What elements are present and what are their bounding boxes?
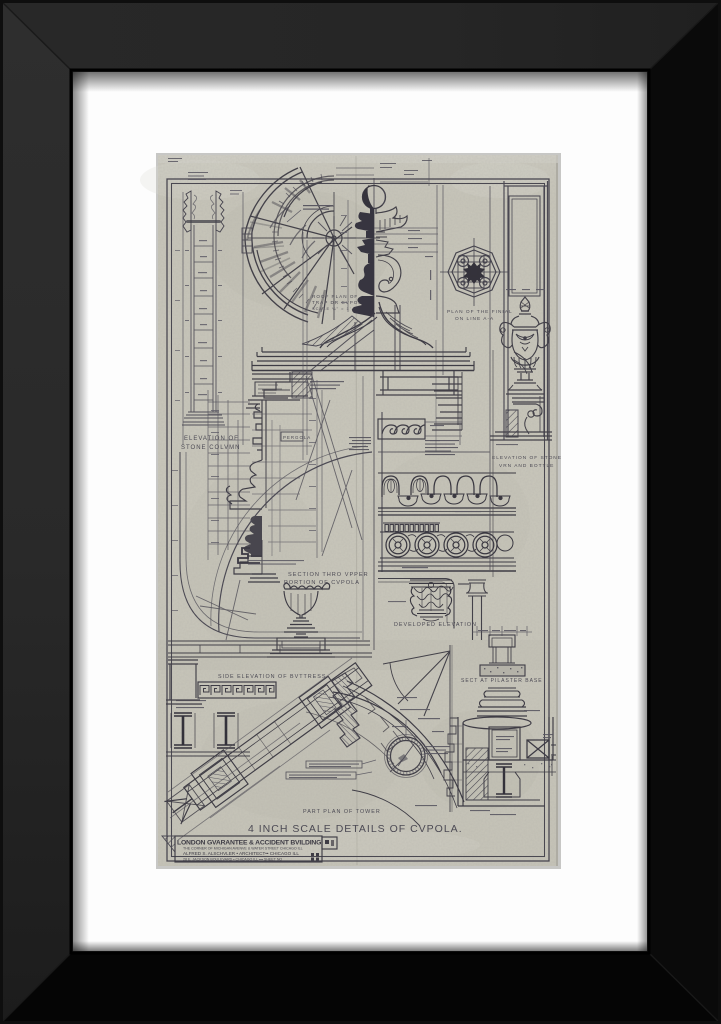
svg-text:PLAN OF THE FINIAL: PLAN OF THE FINIAL xyxy=(447,309,513,315)
svg-text:ROOF PLAN OF: ROOF PLAN OF xyxy=(312,294,358,299)
svg-text:ALFRED S. ALSCHVLER • ARCHITEC: ALFRED S. ALSCHVLER • ARCHITECT•• CHICAG… xyxy=(183,851,299,856)
svg-text:ON LINE A-A: ON LINE A-A xyxy=(455,316,494,322)
svg-text:SECTION THRO VPPER: SECTION THRO VPPER xyxy=(288,572,369,578)
svg-text:ELEVATION OF STONE: ELEVATION OF STONE xyxy=(492,455,562,461)
svg-text:SIDE ELEVATION OF BVTTRESS: SIDE ELEVATION OF BVTTRESS xyxy=(218,674,326,680)
svg-text:SECT AT PILASTER BASE: SECT AT PILASTER BASE xyxy=(461,678,543,684)
svg-text:ELEVATION OF: ELEVATION OF xyxy=(184,436,239,442)
svg-text:LONDON GVARANTEE & ACCIDENT BV: LONDON GVARANTEE & ACCIDENT BVILDING xyxy=(177,840,321,847)
svg-text:STONE COLVMN: STONE COLVMN xyxy=(181,445,240,451)
svg-text:4 INCH SCALE DETAILS OF CV: 4 INCH SCALE DETAILS OF CVPOLA. xyxy=(248,823,463,835)
svg-text:28 E. JACKSON BOULEVARD • CHIC: 28 E. JACKSON BOULEVARD • CHICAGO ILL ••… xyxy=(183,858,282,862)
svg-text:VRN AND BOTTLE: VRN AND BOTTLE xyxy=(499,463,554,469)
svg-text:PORTION OF CVPOLA: PORTION OF CVPOLA xyxy=(284,580,360,586)
svg-text:DEVELOPED ELEVATION: DEVELOPED ELEVATION xyxy=(394,622,477,628)
svg-text:PART PLAN OF TOWER: PART PLAN OF TOWER xyxy=(303,809,381,815)
svg-text:THE CORNER OF MICHIGAN AVENVE: THE CORNER OF MICHIGAN AVENVE & WATER ST… xyxy=(183,847,303,851)
